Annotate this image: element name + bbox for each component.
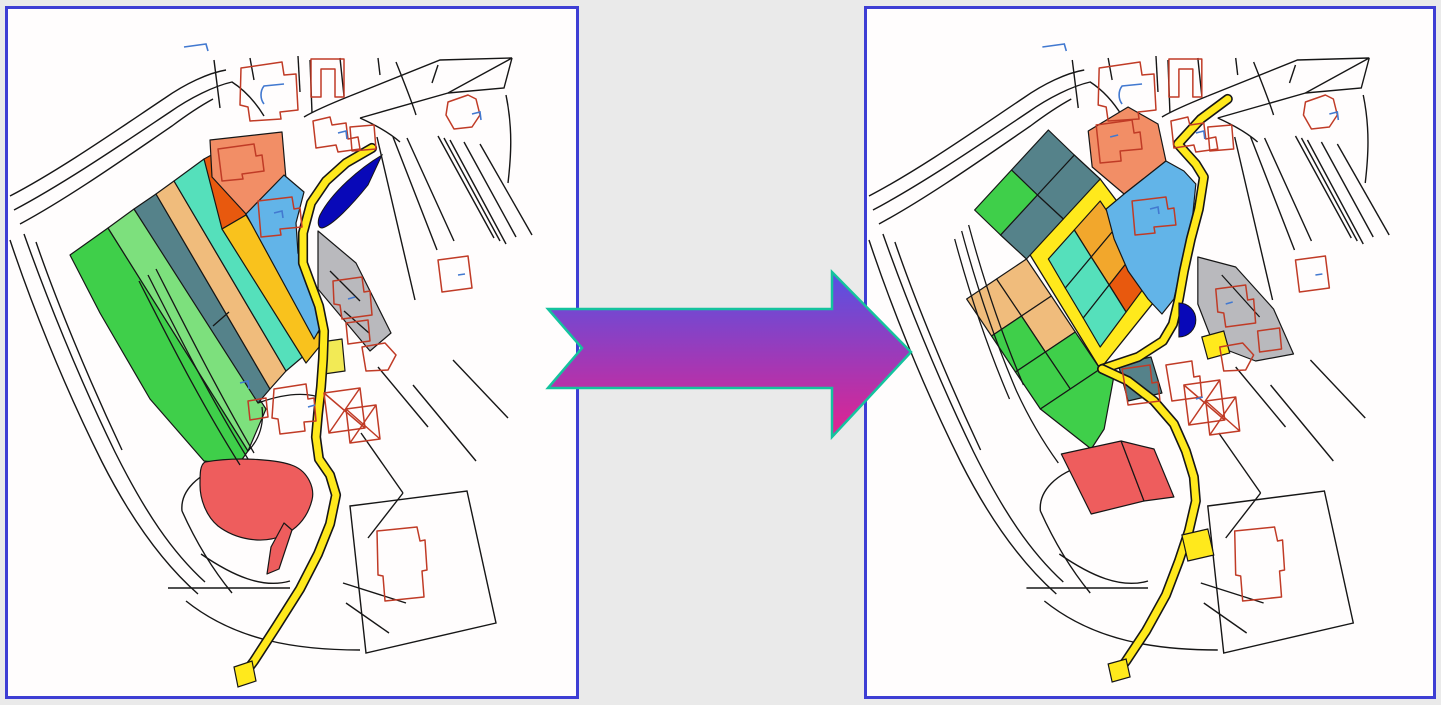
blue-annotation <box>1042 44 1066 51</box>
right-arrow-icon <box>548 272 911 437</box>
building-outline <box>446 95 480 129</box>
building-outline <box>311 59 344 97</box>
road-widening <box>1182 529 1214 561</box>
blue-annotation <box>261 84 284 104</box>
building-outline <box>438 256 472 292</box>
road-tip <box>234 661 256 687</box>
land-consolidation-figure <box>0 0 1441 705</box>
main-road-south <box>1102 369 1196 674</box>
blue-annotation <box>338 131 347 139</box>
before-map-panel <box>5 6 579 699</box>
blue-annotation <box>458 274 465 275</box>
building-outline <box>324 388 365 433</box>
building-outline <box>1235 527 1285 601</box>
building-outline <box>1303 95 1337 129</box>
building-outline <box>272 384 316 434</box>
building-outline <box>240 62 298 121</box>
transform-arrow <box>538 262 918 447</box>
building-outline <box>1295 256 1329 292</box>
blue-annotation <box>184 44 208 51</box>
building-outline <box>313 117 360 152</box>
road-tip <box>1108 659 1130 682</box>
pond <box>1179 303 1196 337</box>
before-map <box>8 9 576 696</box>
after-map-panel <box>864 6 1436 699</box>
blue-annotation <box>1196 131 1205 139</box>
parcel-red-blob <box>200 459 313 540</box>
blue-annotation <box>1119 84 1142 104</box>
after-map <box>867 9 1433 696</box>
building-outline <box>1184 380 1225 425</box>
building-outline <box>377 527 427 601</box>
blue-annotation <box>1315 274 1322 275</box>
building-outline <box>1169 59 1202 97</box>
